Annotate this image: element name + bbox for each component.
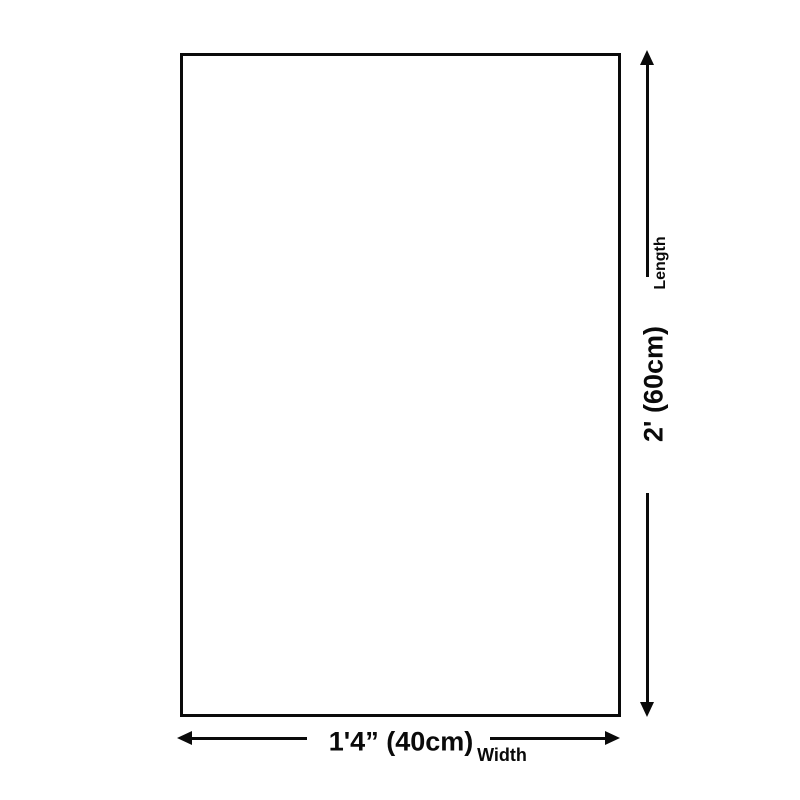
length-value-label: 2' (60cm) <box>641 326 668 442</box>
arrow-left-icon <box>177 731 192 745</box>
dimension-diagram: Length 2' (60cm) 1'4” (40cm) Width <box>0 0 800 800</box>
product-outline-rectangle <box>180 53 621 717</box>
arrow-down-icon <box>640 702 654 717</box>
length-arrow-upper-line <box>646 63 649 277</box>
width-arrow-left-line <box>191 737 307 740</box>
arrow-right-icon <box>605 731 620 745</box>
width-arrow-right-line <box>490 737 606 740</box>
length-arrow-lower-line <box>646 493 649 703</box>
width-axis-label: Width <box>477 746 527 764</box>
length-axis-label: Length <box>653 236 669 289</box>
width-value-label: 1'4” (40cm) <box>329 729 474 756</box>
